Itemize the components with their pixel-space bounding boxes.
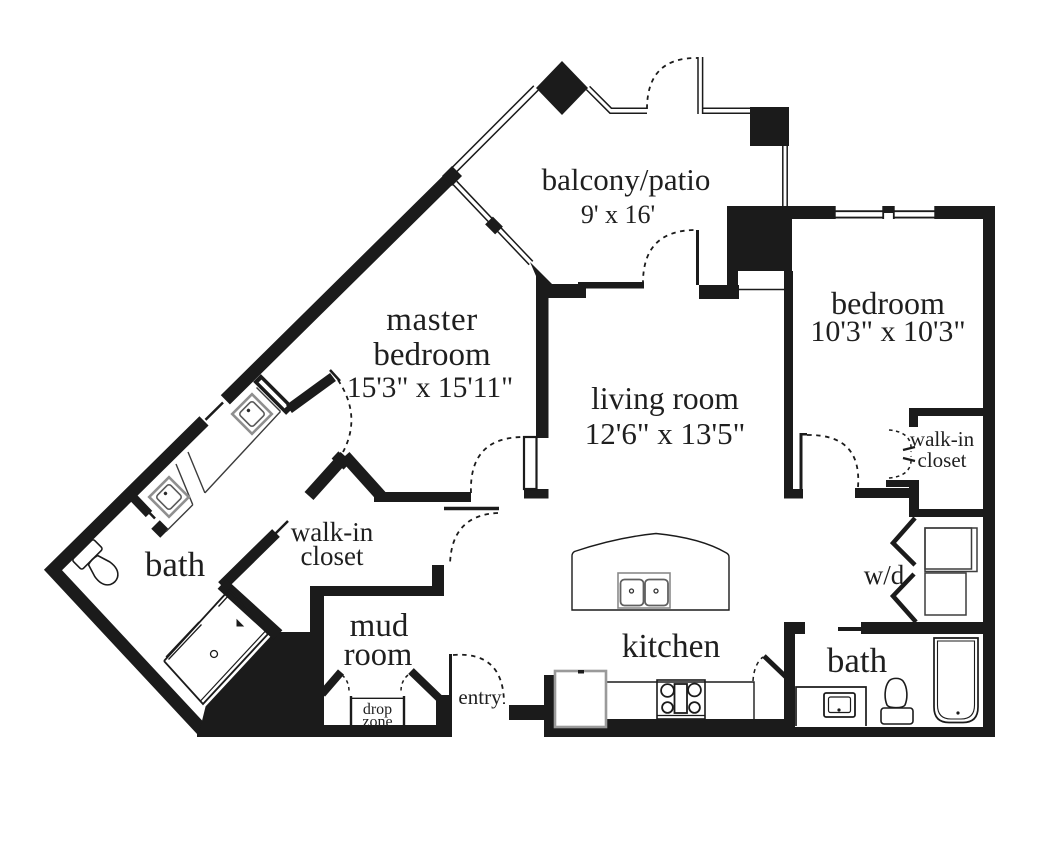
- svg-text:room: room: [344, 637, 413, 673]
- svg-text:closet: closet: [301, 541, 364, 571]
- svg-text:bath: bath: [145, 545, 206, 584]
- svg-text:15'3" x 15'11": 15'3" x 15'11": [347, 372, 513, 404]
- svg-text:living room: living room: [591, 381, 739, 416]
- svg-text:kitchen: kitchen: [622, 628, 721, 665]
- svg-text:bath: bath: [827, 641, 888, 680]
- svg-text:bedroom: bedroom: [373, 337, 491, 373]
- svg-text:w/d: w/d: [864, 560, 905, 590]
- svg-text:entry: entry: [458, 685, 502, 709]
- svg-text:closet: closet: [918, 448, 967, 472]
- svg-text:balcony/patio: balcony/patio: [542, 162, 711, 197]
- svg-text:12'6" x 13'5": 12'6" x 13'5": [585, 416, 745, 451]
- svg-text:master: master: [386, 302, 478, 338]
- svg-text:9' x 16': 9' x 16': [581, 200, 655, 229]
- svg-text:10'3" x 10'3": 10'3" x 10'3": [810, 315, 965, 348]
- svg-text:zone: zone: [362, 714, 392, 731]
